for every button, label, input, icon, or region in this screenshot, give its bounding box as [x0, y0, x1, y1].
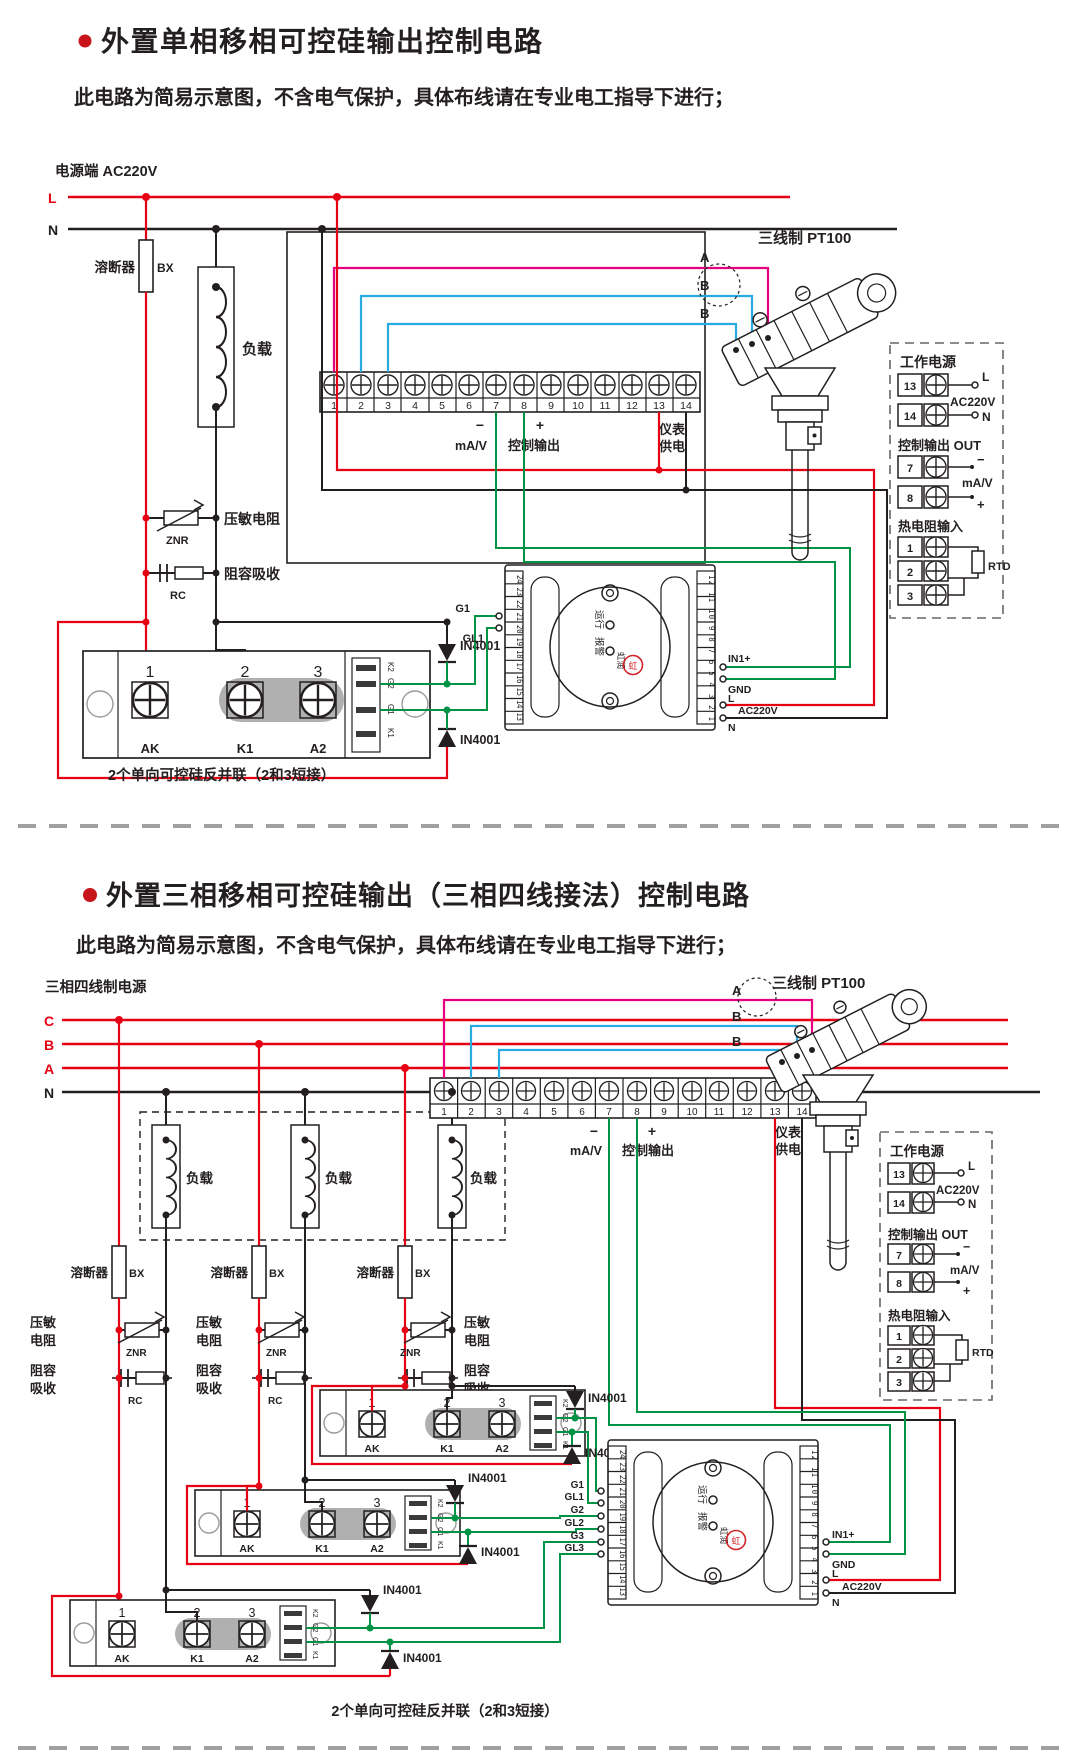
- fuse-model: BX: [157, 261, 174, 275]
- plus-label: +: [648, 1123, 656, 1139]
- legend-n: N: [968, 1199, 976, 1211]
- legend-mav: mA/V: [962, 476, 993, 490]
- strip-num: 5: [439, 400, 445, 412]
- strip-num: 8: [521, 400, 527, 412]
- legend-out-title: 控制输出 OUT: [898, 438, 981, 453]
- brand-mark: 虹: [628, 661, 637, 671]
- legend-7: 7: [896, 1250, 902, 1262]
- rail-b-label: B: [44, 1037, 54, 1053]
- scr-side-k2: K2: [436, 1499, 443, 1508]
- legend-2: 2: [907, 567, 913, 579]
- scr-label-ak: AK: [114, 1653, 130, 1665]
- scr-terminal-2: 2: [241, 664, 250, 681]
- scr-side-k2: K2: [561, 1399, 568, 1408]
- n-label: N: [728, 722, 736, 734]
- diode-label: IN4001: [460, 733, 500, 747]
- terminal-legend: 工作电源 13 L AC220V 14 N 控制输出 OUT 7 − mA/V …: [880, 1132, 994, 1400]
- varistor-model: ZNR: [126, 1348, 147, 1359]
- fuse-model: BX: [129, 1268, 145, 1280]
- meter-supply-label-1: 仪表: [658, 422, 686, 437]
- wiring-diagram-page: 外置单相移相可控硅输出控制电路 此电路为简易示意图，不含电气保护，具体布线请在专…: [0, 0, 1080, 1762]
- scr-terminal-1: 1: [146, 664, 155, 681]
- strip-num: 10: [686, 1107, 698, 1118]
- strip-num: 1: [441, 1107, 447, 1118]
- legend-mav: mA/V: [950, 1265, 980, 1277]
- pt100-sensor: 三线制 PT100: [698, 229, 904, 560]
- legend-power-title: 工作电源: [900, 354, 956, 370]
- scr-label-a2: A2: [310, 741, 327, 756]
- l-label: L: [832, 1568, 839, 1580]
- scr-terminal-3: 3: [249, 1606, 256, 1620]
- snubber-name: 吸收: [196, 1381, 223, 1396]
- alarm-label: 报警: [593, 637, 605, 657]
- pt100-label: 三线制 PT100: [758, 229, 851, 247]
- trigger-left-terminals: 24 23 22 21 20 19 18 17 16 15 14 13: [515, 575, 524, 721]
- legend-ac220v: AC220V: [936, 1185, 980, 1197]
- wire-a-label: A: [700, 250, 710, 265]
- wire-b2-label: B: [732, 1034, 741, 1049]
- legend-8: 8: [896, 1278, 902, 1290]
- fuse-name: 溶断器: [95, 259, 136, 275]
- run-label: 运行: [696, 1485, 708, 1505]
- bullet-icon: [79, 35, 92, 48]
- wire-a-label: A: [732, 983, 742, 998]
- scr-side-k1: K1: [436, 1541, 443, 1550]
- strip-num: 2: [468, 1107, 474, 1118]
- strip-num: 11: [714, 1107, 725, 1118]
- varistor-name: 压敏: [30, 1315, 57, 1330]
- fuse-name: 溶断器: [356, 1265, 394, 1280]
- snubber-name: 阻容吸收: [224, 566, 281, 582]
- trigger-left-terminals: 24 23 22 21 20 19 18 17 16 15 14 13: [618, 1450, 627, 1596]
- strip-num: 14: [796, 1107, 808, 1118]
- section1-subtitle: 此电路为简易示意图，不含电气保护，具体布线请在专业电工指导下进行；: [74, 85, 734, 109]
- terminal-strip: 1 2 3 4 5 6 7 8 9 10 11 12 13 14: [430, 1078, 816, 1118]
- rail-c-label: C: [44, 1013, 54, 1029]
- varistor-name: 压敏: [196, 1315, 223, 1330]
- g1-label: G1: [455, 603, 470, 615]
- snubber-name: 阻容: [196, 1363, 222, 1378]
- scr-label-k1: K1: [237, 741, 254, 756]
- g1-label: G1: [571, 1480, 585, 1491]
- section2-subtitle: 此电路为简易示意图，不含电气保护，具体布线请在专业电工指导下进行；: [76, 933, 736, 957]
- snubber-model: RC: [128, 1396, 142, 1407]
- mav-label: mA/V: [570, 1144, 603, 1158]
- strip-num: 4: [412, 400, 418, 412]
- bullet-icon: [83, 888, 97, 902]
- pt100-label: 三线制 PT100: [772, 974, 865, 992]
- legend-plus: +: [977, 497, 985, 512]
- legend-l: L: [968, 1161, 975, 1173]
- legend-minus: −: [963, 1240, 970, 1254]
- g3-label: G3: [571, 1531, 585, 1542]
- meter-supply-label-1: 仪表: [774, 1125, 802, 1140]
- snubber-model: RC: [268, 1396, 282, 1407]
- strip-num: 4: [523, 1107, 529, 1118]
- trigger-right-terminals: 12 11 10 9 8 7 6 5 4 3 2 1: [707, 575, 716, 721]
- legend-1: 1: [907, 543, 913, 555]
- scr-terminal-3: 3: [374, 1496, 381, 1510]
- varistor-model: ZNR: [266, 1348, 287, 1359]
- load-label: 负载: [325, 1170, 352, 1186]
- scr-terminal-3: 3: [499, 1396, 506, 1410]
- diode-label: IN4001: [468, 1471, 507, 1485]
- n-label: N: [832, 1597, 840, 1609]
- diode-label: IN4001: [403, 1651, 442, 1665]
- meter-supply-label-2: 供电: [774, 1142, 801, 1157]
- legend-14: 14: [904, 411, 917, 423]
- strip-num: 3: [385, 400, 391, 412]
- legend-rtd: RTD: [988, 561, 1011, 573]
- strip-num: 6: [466, 400, 472, 412]
- ctrl-out-label: 控制输出: [508, 438, 560, 453]
- plus-label: +: [536, 417, 544, 433]
- minus-label: −: [476, 417, 484, 433]
- load-label: 负载: [186, 1170, 213, 1186]
- wire-b1-label: B: [732, 1009, 741, 1024]
- ac-label: AC220V: [842, 1581, 882, 1593]
- scr-caption: 2个单向可控硅反并联（2和3短接）: [331, 1702, 558, 1720]
- gl1-label: GL1: [565, 1492, 585, 1503]
- scr-terminal-1: 1: [119, 1606, 126, 1620]
- varistor-model: ZNR: [166, 535, 189, 547]
- varistor-name: 电阻: [196, 1333, 222, 1348]
- strip-num: 12: [741, 1107, 753, 1118]
- diode-label: IN4001: [588, 1391, 627, 1405]
- strip-num: 10: [572, 400, 584, 412]
- varistor-name: 电阻: [464, 1333, 490, 1348]
- varistor-name: 电阻: [30, 1333, 56, 1348]
- legend-13: 13: [893, 1169, 905, 1181]
- wire-b1-label: B: [700, 278, 709, 293]
- section1-title: 外置单相移相可控硅输出控制电路: [101, 25, 544, 57]
- scr-side-k1: K1: [311, 1651, 318, 1660]
- strip-num: 13: [653, 400, 665, 412]
- strip-num: 14: [680, 400, 692, 412]
- legend-rtd-title: 热电阻输入: [898, 519, 963, 534]
- power-source-label: 电源端 AC220V: [55, 162, 158, 180]
- legend-rtd-title: 热电阻输入: [888, 1308, 951, 1323]
- scr-side-k2: K2: [311, 1609, 318, 1618]
- legend-14: 14: [893, 1198, 905, 1210]
- in1-label: IN1+: [728, 653, 750, 665]
- fuse-model: BX: [269, 1268, 285, 1280]
- scr-label-k1: K1: [440, 1443, 454, 1455]
- mav-label: mA/V: [455, 439, 488, 453]
- run-label: 运行: [593, 610, 605, 630]
- load-label: 负载: [242, 340, 272, 358]
- scr-label-a2: A2: [370, 1543, 384, 1555]
- rail-a-label: A: [44, 1061, 54, 1077]
- rail-l-label: L: [48, 190, 57, 206]
- snubber-model: RC: [170, 590, 186, 602]
- strip-num: 3: [496, 1107, 502, 1118]
- gl3-label: GL3: [565, 1543, 585, 1554]
- diode-label: IN4001: [383, 1583, 422, 1597]
- legend-3: 3: [896, 1377, 902, 1389]
- scr-label-ak: AK: [141, 741, 160, 756]
- strip-num: 7: [493, 400, 499, 412]
- legend-power-title: 工作电源: [890, 1143, 944, 1159]
- wire-b2-label: B: [700, 306, 709, 321]
- power-source-label: 三相四线制电源: [45, 978, 147, 996]
- strip-num: 7: [606, 1107, 612, 1118]
- rail-n-label: N: [44, 1085, 54, 1101]
- fuse-name: 溶断器: [210, 1265, 248, 1280]
- scr-side-k1: K1: [386, 728, 395, 738]
- scr-label-ak: AK: [364, 1443, 380, 1455]
- scr-module: 1 2 3 AK K1 A2 K2 G2 G1 K1: [83, 651, 430, 758]
- strip-num: 2: [358, 400, 364, 412]
- legend-13: 13: [904, 381, 916, 393]
- strip-num: 11: [600, 400, 611, 412]
- l-label: L: [728, 693, 735, 705]
- alarm-label: 报警: [696, 1512, 708, 1532]
- section2-title: 外置三相移相可控硅输出（三相四线接法）控制电路: [106, 880, 750, 911]
- strip-num: 6: [579, 1107, 585, 1118]
- gl2-label: GL2: [565, 1518, 585, 1529]
- load-label: 负载: [470, 1170, 497, 1186]
- varistor-name: 压敏电阻: [224, 511, 280, 527]
- snubber-name: 吸收: [30, 1381, 57, 1396]
- minus-label: −: [590, 1123, 598, 1139]
- terminal-legend: 工作电源 13 L AC220V 14 N 控制输出 OUT 7 − mA/V …: [890, 343, 1011, 618]
- scr-module: 1 2 3 AK K1 A2 K2 G2 G1 K1: [320, 1390, 585, 1456]
- section1-header: 外置单相移相可控硅输出控制电路 此电路为简易示意图，不含电气保护，具体布线请在专…: [74, 25, 734, 109]
- strip-num: 9: [661, 1107, 667, 1118]
- trigger-controller: 24 23 22 21 20 19 18 17 16 15 14 13 12 1…: [565, 1440, 882, 1609]
- strip-num: 8: [634, 1107, 640, 1118]
- terminal-strip: 1 2 3 4 5 6 7 8 9 10 11 12 13 14: [320, 372, 700, 412]
- scr-label-k1: K1: [315, 1543, 329, 1555]
- gl1-label: GL1: [463, 633, 484, 645]
- fuse-model: BX: [415, 1268, 431, 1280]
- scr-label-k1: K1: [190, 1653, 204, 1665]
- trigger-controller: 24 23 22 21 20 19 18 17 16 15 14 13 12 1…: [455, 565, 777, 734]
- legend-l: L: [982, 370, 989, 384]
- scr-module: 1 2 3 AK K1 A2 K2 G2 G1 K1: [70, 1600, 335, 1666]
- brand-mark: 虹: [731, 1536, 740, 1546]
- section1-schematic: 电源端 AC220V L N 溶断器 BX 负载 压敏电阻 ZNR 阻容吸收 R…: [48, 162, 1011, 784]
- trigger-right-terminals: 12 11 10 9 8 7 6 5 4 3 2 1: [810, 1450, 819, 1596]
- legend-n: N: [982, 410, 991, 424]
- varistor-model: ZNR: [400, 1348, 421, 1359]
- snubber-name: 阻容: [30, 1363, 56, 1378]
- ac-label: AC220V: [738, 705, 778, 717]
- snubber-name: 阻容: [464, 1363, 490, 1378]
- legend-7: 7: [907, 463, 913, 475]
- rail-n-label: N: [48, 222, 58, 238]
- scr-label-a2: A2: [245, 1653, 259, 1665]
- scr-label-a2: A2: [495, 1443, 509, 1455]
- scr-module: 1 2 3 AK K1 A2 K2 G2 G1 K1: [195, 1490, 460, 1556]
- legend-minus: −: [977, 452, 985, 467]
- scr-terminal-3: 3: [314, 664, 323, 681]
- legend-8: 8: [907, 493, 913, 505]
- scr-side-k2: K2: [386, 662, 395, 672]
- g2-label: G2: [571, 1505, 585, 1516]
- scr-label-ak: AK: [239, 1543, 255, 1555]
- diode-label: IN4001: [481, 1545, 520, 1559]
- legend-ac220v: AC220V: [950, 395, 995, 409]
- fuse-name: 溶断器: [70, 1265, 108, 1280]
- legend-1: 1: [896, 1331, 902, 1343]
- legend-out-title: 控制输出 OUT: [888, 1227, 968, 1242]
- ctrl-out-label: 控制输出: [622, 1143, 674, 1158]
- strip-num: 9: [548, 400, 554, 412]
- section2-schematic: 三相四线制电源 C B A N 负载 负载 负载: [30, 966, 1040, 1720]
- in1-label: IN1+: [832, 1529, 854, 1541]
- section2-header: 外置三相移相可控硅输出（三相四线接法）控制电路 此电路为简易示意图，不含电气保护…: [76, 880, 750, 957]
- legend-rtd: RTD: [972, 1347, 994, 1359]
- varistor-name: 压敏: [464, 1315, 491, 1330]
- meter-supply-label-2: 供电: [658, 439, 685, 454]
- legend-plus: +: [963, 1284, 970, 1298]
- legend-3: 3: [907, 591, 913, 603]
- strip-num: 13: [769, 1107, 781, 1118]
- strip-num: 5: [551, 1107, 557, 1118]
- scr-caption: 2个单向可控硅反并联（2和3短接）: [108, 766, 335, 784]
- legend-2: 2: [896, 1354, 902, 1366]
- strip-num: 12: [626, 400, 638, 412]
